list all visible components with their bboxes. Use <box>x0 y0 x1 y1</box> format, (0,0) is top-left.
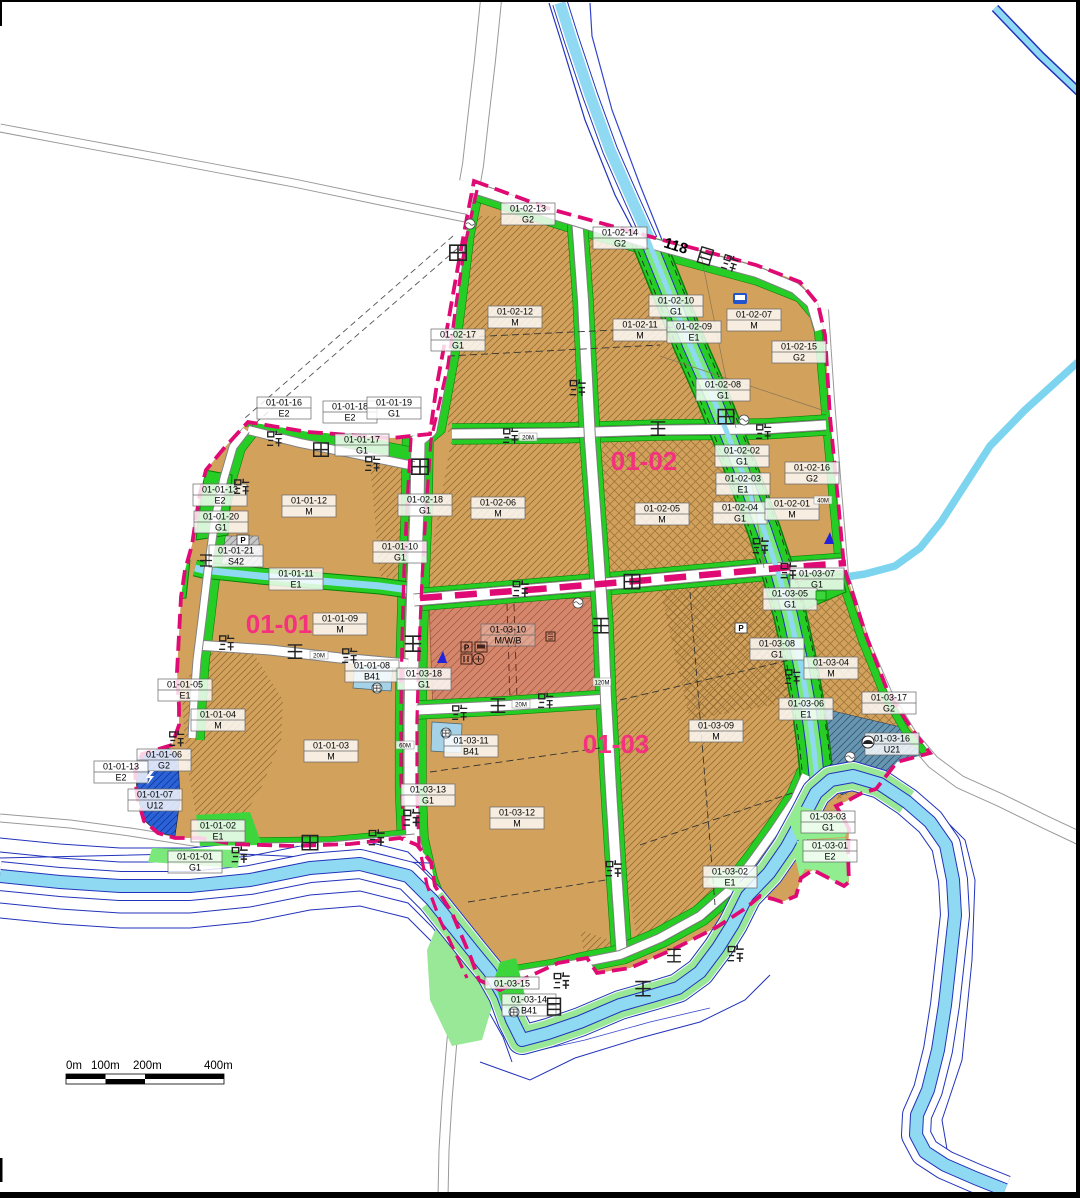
svg-text:M: M <box>327 752 335 762</box>
svg-text:E1: E1 <box>179 691 190 701</box>
svg-text:M: M <box>494 509 502 519</box>
svg-text:G1: G1 <box>822 823 834 833</box>
svg-text:G1: G1 <box>771 650 783 660</box>
svg-text:0m: 0m <box>66 1060 82 1072</box>
svg-text:100m: 100m <box>91 1060 120 1072</box>
svg-text:01-01-07: 01-01-07 <box>137 790 173 800</box>
svg-text:01-01-16: 01-01-16 <box>266 398 302 408</box>
svg-text:M: M <box>827 669 835 679</box>
svg-text:M: M <box>511 318 519 328</box>
svg-text:01-01-04: 01-01-04 <box>200 710 236 720</box>
svg-text:E1: E1 <box>724 878 735 888</box>
svg-text:B41: B41 <box>364 672 380 682</box>
svg-text:01-03-16: 01-03-16 <box>874 734 910 744</box>
svg-text:G2: G2 <box>806 474 818 484</box>
svg-text:01-03-03: 01-03-03 <box>810 812 846 822</box>
svg-text:01-02-12: 01-02-12 <box>497 307 533 317</box>
svg-text:01-03-04: 01-03-04 <box>813 658 849 668</box>
svg-text:G2: G2 <box>793 353 805 363</box>
svg-text:20M: 20M <box>522 436 534 442</box>
svg-text:01-01-13: 01-01-13 <box>202 485 238 495</box>
svg-text:01-03-08: 01-03-08 <box>759 639 795 649</box>
svg-text:01-02-09: 01-02-09 <box>676 322 712 332</box>
svg-text:01-01-05: 01-01-05 <box>167 680 203 690</box>
svg-text:01-03-10: 01-03-10 <box>490 625 526 635</box>
svg-text:01-01-02: 01-01-02 <box>200 821 236 831</box>
svg-text:G2: G2 <box>883 704 895 714</box>
svg-text:M: M <box>336 625 344 635</box>
svg-text:E1: E1 <box>737 485 748 495</box>
svg-text:01-01-17: 01-01-17 <box>344 435 380 445</box>
svg-text:20M: 20M <box>313 654 325 660</box>
svg-text:01-02-10: 01-02-10 <box>658 296 694 306</box>
svg-text:E2: E2 <box>344 413 355 423</box>
svg-text:M: M <box>788 510 796 520</box>
svg-text:G1: G1 <box>670 307 682 317</box>
svg-text:01-01-21: 01-01-21 <box>218 546 254 556</box>
svg-text:01-02-08: 01-02-08 <box>705 380 741 390</box>
svg-text:01-03-01: 01-03-01 <box>812 841 848 851</box>
svg-text:01-03-05: 01-03-05 <box>772 589 808 599</box>
svg-text:M/W/B: M/W/B <box>495 636 522 646</box>
svg-text:P: P <box>464 644 470 653</box>
svg-text:E1: E1 <box>212 832 223 842</box>
svg-text:01-03-18: 01-03-18 <box>406 669 442 679</box>
svg-text:G1: G1 <box>717 391 729 401</box>
svg-text:G1: G1 <box>418 680 430 690</box>
svg-text:01-01-20: 01-01-20 <box>203 512 239 522</box>
svg-text:01-02-18: 01-02-18 <box>407 495 443 505</box>
svg-text:60M: 60M <box>399 744 411 750</box>
svg-text:G1: G1 <box>215 523 227 533</box>
svg-text:01-01-13: 01-01-13 <box>103 762 139 772</box>
svg-text:01-01-10: 01-01-10 <box>382 542 418 552</box>
svg-text:01-02-06: 01-02-06 <box>480 498 516 508</box>
svg-text:B41: B41 <box>463 747 479 757</box>
svg-text:E1: E1 <box>290 580 301 590</box>
svg-text:G1: G1 <box>388 409 400 419</box>
svg-text:01-02-14: 01-02-14 <box>602 228 638 238</box>
svg-text:G1: G1 <box>734 514 746 524</box>
svg-text:20M: 20M <box>515 703 527 709</box>
svg-text:01-03-13: 01-03-13 <box>410 785 446 795</box>
svg-text:G2: G2 <box>614 239 626 249</box>
svg-text:01-02-15: 01-02-15 <box>781 342 817 352</box>
svg-text:01-02-03: 01-02-03 <box>725 474 761 484</box>
svg-text:M: M <box>214 721 222 731</box>
svg-text:01-01-09: 01-01-09 <box>322 614 358 624</box>
svg-text:01-01-18: 01-01-18 <box>332 402 368 412</box>
svg-text:01-01-11: 01-01-11 <box>278 569 313 579</box>
svg-text:G1: G1 <box>394 553 406 563</box>
svg-text:40M: 40M <box>817 499 829 505</box>
svg-text:01-01-01: 01-01-01 <box>177 852 213 862</box>
svg-text:01-02-17: 01-02-17 <box>440 330 476 340</box>
svg-text:01-03-06: 01-03-06 <box>788 699 824 709</box>
svg-text:01-03-17: 01-03-17 <box>871 693 907 703</box>
svg-text:01-02-02: 01-02-02 <box>724 446 760 456</box>
svg-text:S42: S42 <box>228 557 244 567</box>
svg-text:G1: G1 <box>736 457 748 467</box>
svg-text:01-01-06: 01-01-06 <box>146 750 182 760</box>
svg-text:200m: 200m <box>133 1060 162 1072</box>
svg-text:01-01-03: 01-01-03 <box>313 741 349 751</box>
svg-text:01-02-16: 01-02-16 <box>794 463 830 473</box>
svg-text:01-03-14: 01-03-14 <box>511 995 547 1005</box>
svg-text:01-02-11: 01-02-11 <box>622 320 657 330</box>
svg-text:01-03-11: 01-03-11 <box>453 736 488 746</box>
svg-text:01-02-05: 01-02-05 <box>644 504 680 514</box>
svg-text:M: M <box>658 515 666 525</box>
svg-text:G1: G1 <box>452 341 464 351</box>
svg-text:01-01-08: 01-01-08 <box>354 661 390 671</box>
svg-text:G1: G1 <box>419 506 431 516</box>
svg-text:01-02-01: 01-02-01 <box>774 499 810 509</box>
svg-text:01-03-12: 01-03-12 <box>499 808 535 818</box>
svg-text:E2: E2 <box>115 773 126 783</box>
svg-text:01-02-07: 01-02-07 <box>736 310 772 320</box>
svg-text:01-03-09: 01-03-09 <box>698 721 734 731</box>
svg-text:G1: G1 <box>784 600 796 610</box>
svg-text:01-03: 01-03 <box>583 729 650 759</box>
svg-text:M: M <box>712 732 720 742</box>
svg-text:M: M <box>750 321 758 331</box>
svg-text:01-01-12: 01-01-12 <box>291 496 327 506</box>
svg-text:P: P <box>738 624 744 633</box>
svg-text:01-02-13: 01-02-13 <box>510 204 546 214</box>
svg-text:E2: E2 <box>824 852 835 862</box>
svg-text:P: P <box>240 536 246 545</box>
svg-text:400m: 400m <box>204 1060 233 1072</box>
svg-text:E2: E2 <box>278 409 289 419</box>
svg-text:120M: 120M <box>594 681 609 687</box>
svg-text:01-02-04: 01-02-04 <box>722 503 758 513</box>
svg-text:U12: U12 <box>147 801 164 811</box>
svg-text:G1: G1 <box>189 863 201 873</box>
svg-text:01-03-07: 01-03-07 <box>799 569 835 579</box>
svg-text:01-01: 01-01 <box>246 609 313 639</box>
svg-text:M: M <box>513 819 521 829</box>
svg-text:01-03-15: 01-03-15 <box>494 979 530 989</box>
svg-text:B41: B41 <box>521 1006 537 1016</box>
svg-text:01-02: 01-02 <box>611 446 678 476</box>
svg-text:M: M <box>636 331 644 341</box>
svg-text:G2: G2 <box>158 761 170 771</box>
svg-text:G1: G1 <box>422 796 434 806</box>
svg-text:G2: G2 <box>522 215 534 225</box>
svg-text:E1: E1 <box>688 333 699 343</box>
svg-text:M: M <box>305 507 313 517</box>
svg-text:U21: U21 <box>884 745 901 755</box>
svg-text:E2: E2 <box>214 496 225 506</box>
svg-text:01-01-19: 01-01-19 <box>376 398 412 408</box>
svg-text:E1: E1 <box>800 710 811 720</box>
svg-text:01-03-02: 01-03-02 <box>712 867 748 877</box>
svg-text:G1: G1 <box>356 446 368 456</box>
